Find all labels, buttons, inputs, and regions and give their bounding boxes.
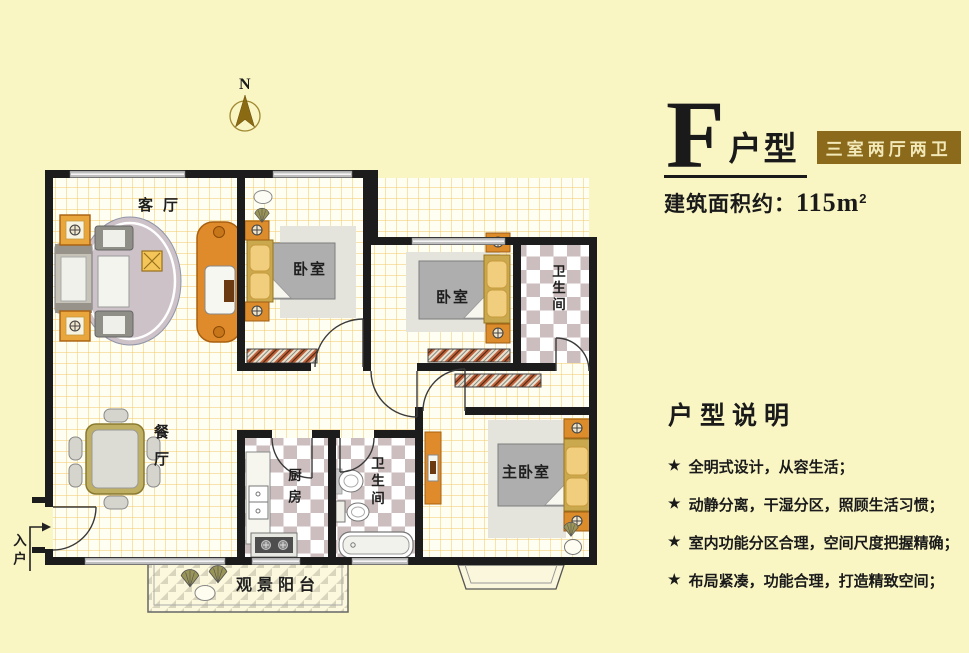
window: [412, 238, 505, 245]
window: [85, 558, 225, 565]
bay-window: [458, 565, 564, 589]
bath-bottom-label: 卫生间: [366, 456, 386, 509]
compass-icon: [230, 95, 260, 131]
stool: [565, 540, 582, 555]
nightstand: [245, 302, 269, 321]
chair: [104, 496, 128, 509]
star-icon: ★: [668, 494, 681, 514]
side-table: [60, 215, 90, 245]
feature-item: ★ 室内功能分区合理，空间尺度把握精确；: [668, 532, 968, 553]
window: [352, 558, 408, 565]
nightstand: [486, 324, 510, 343]
wardrobe: [247, 349, 317, 363]
kitchen-label: 厨房: [283, 468, 303, 511]
planter-pot: [195, 586, 215, 601]
title-row: F 户型 三室两厅两卫: [664, 98, 966, 178]
hallway-closet: [455, 374, 541, 387]
plan-title: F 户型: [664, 98, 807, 178]
pillow: [250, 245, 270, 271]
plan-suffix: 户型: [725, 122, 799, 173]
feature-text: 布局紧凑，功能合理，打造精致空间；: [689, 570, 944, 591]
feature-text: 全明式设计，从容生活；: [689, 456, 854, 477]
pillow: [250, 273, 270, 299]
window: [273, 171, 352, 178]
tv-cabinet: [197, 222, 241, 342]
side-table: [60, 311, 90, 341]
pillow: [487, 290, 507, 317]
compass-north-label: N: [239, 76, 251, 94]
kitchen-sink: [249, 486, 268, 519]
plan-letter: F: [666, 98, 725, 173]
description-heading: 户型说明: [668, 396, 968, 432]
master-bedroom-label: 主卧室: [502, 461, 550, 482]
feature-item: ★ 全明式设计，从容生活；: [668, 456, 968, 477]
window: [252, 558, 300, 565]
pillow: [566, 478, 588, 506]
sofa: [55, 244, 92, 313]
tv-cabinet: [425, 432, 441, 504]
entry-label: 入户: [8, 533, 28, 570]
chair: [69, 464, 82, 487]
bedroom-top-label: 卧室: [293, 258, 327, 279]
pillow: [566, 447, 588, 475]
title-block: F 户型 三室两厅两卫 建筑面积约：115m2: [664, 98, 966, 218]
area-value: 115m: [796, 188, 859, 217]
nightstand: [245, 221, 269, 240]
living-room-furniture: [55, 215, 241, 345]
dining-label: 餐厅: [150, 424, 171, 478]
feature-item: ★ 动静分离，干湿分区，照顾生活习惯；: [668, 494, 968, 515]
stove: [251, 533, 297, 557]
coffee-table: [98, 256, 129, 307]
star-icon: ★: [668, 456, 681, 476]
floorplan-page: { "header": { "plan_letter": "F", "plan_…: [0, 0, 969, 653]
feature-text: 动静分离，干湿分区，照顾生活习惯；: [689, 494, 944, 515]
chair: [104, 409, 128, 422]
feature-text: 室内功能分区合理，空间尺度把握精确；: [689, 532, 959, 553]
bath-top-label: 卫生间: [547, 264, 567, 314]
star-icon: ★: [668, 532, 681, 552]
bathtub: [339, 532, 413, 558]
layout-badge: 三室两厅两卫: [817, 131, 961, 164]
bedroom-mid-label: 卧室: [436, 286, 470, 307]
toilet: [336, 501, 369, 522]
window: [70, 171, 185, 178]
nightstand: [564, 419, 590, 438]
area-sup: 2: [859, 191, 867, 206]
entry-step: [32, 497, 45, 503]
feature-list: ★ 全明式设计，从容生活； ★ 动静分离，干湿分区，照顾生活习惯； ★ 室内功能…: [668, 456, 968, 591]
vanity-mirror: [254, 191, 272, 204]
balcony-label: 观景阳台: [236, 571, 320, 595]
area-line: 建筑面积约：115m2: [664, 188, 966, 218]
armchair: [95, 311, 133, 337]
pillow: [487, 261, 507, 288]
area-label: 建筑面积约：: [664, 193, 796, 216]
armchair: [95, 226, 133, 250]
feature-item: ★ 布局紧凑，功能合理，打造精致空间；: [668, 570, 968, 591]
entry-step: [32, 547, 45, 553]
star-icon: ★: [668, 570, 681, 590]
closet: [428, 349, 510, 362]
description-block: 户型说明 ★ 全明式设计，从容生活； ★ 动静分离，干湿分区，照顾生活习惯； ★…: [668, 396, 968, 608]
chair: [69, 437, 82, 460]
floor-lamp: [142, 251, 162, 271]
living-room-label: 客厅: [138, 194, 188, 215]
